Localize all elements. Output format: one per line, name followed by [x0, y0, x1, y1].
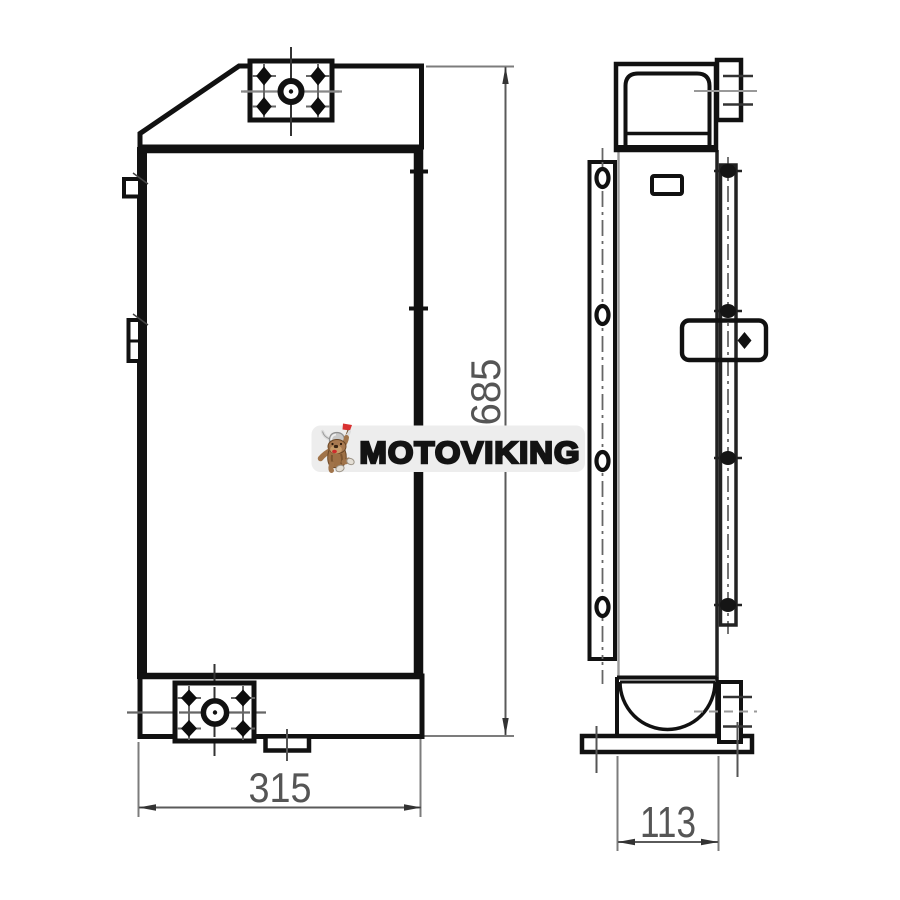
svg-text:113: 113	[640, 798, 696, 847]
svg-text:685: 685	[462, 359, 509, 426]
svg-text:315: 315	[249, 764, 312, 811]
svg-text:MOTOVIKING: MOTOVIKING	[360, 435, 581, 470]
